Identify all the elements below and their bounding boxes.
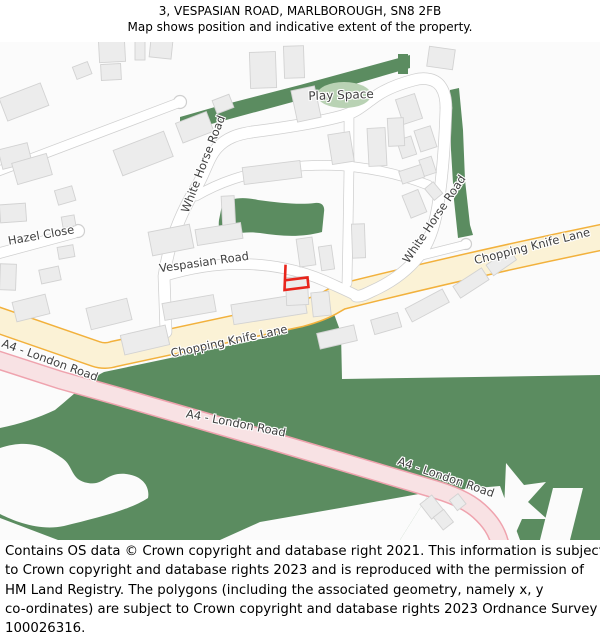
copyright-line: 100026316.	[5, 619, 600, 638]
header: 3, VESPASIAN ROAD, MARLBOROUGH, SN8 2FB …	[0, 0, 600, 42]
copyright-line: HM Land Registry. The polygons (includin…	[5, 581, 600, 600]
map-canvas: Play Space White Horse Road White Horse …	[0, 42, 600, 540]
copyright-line: co-ordinates) are subject to Crown copyr…	[5, 600, 600, 619]
page-title: 3, VESPASIAN ROAD, MARLBOROUGH, SN8 2FB	[0, 4, 600, 18]
copyright-line: Contains OS data © Crown copyright and d…	[5, 542, 600, 561]
map-svg	[0, 42, 600, 540]
play-space-area	[317, 82, 371, 108]
page-subtitle: Map shows position and indicative extent…	[0, 20, 600, 34]
copyright-line: to Crown copyright and database rights 2…	[5, 561, 600, 580]
footer-copyright: Contains OS data © Crown copyright and d…	[0, 540, 600, 625]
woodland-small-patch	[398, 54, 408, 74]
woodland-right-strip	[450, 88, 473, 238]
